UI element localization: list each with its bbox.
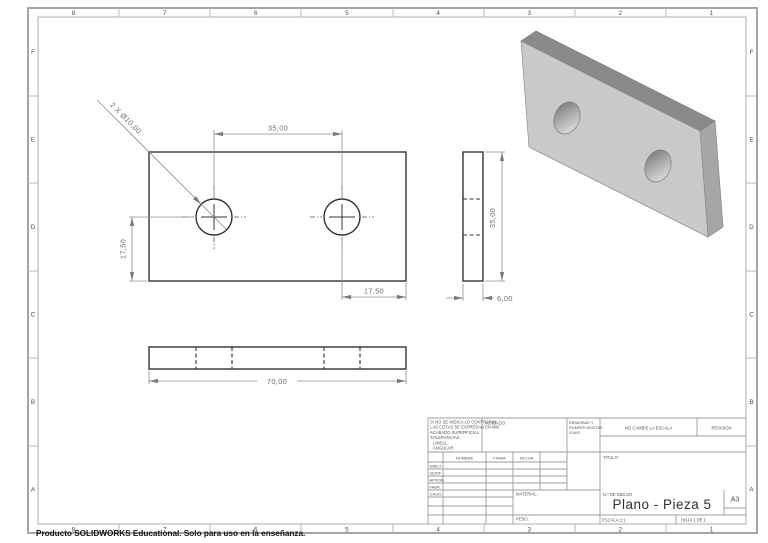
sign-row-label: DIBUJ. bbox=[430, 464, 443, 469]
title-label: TÍTULO: bbox=[603, 455, 619, 460]
educational-footer-note: Producto SOLIDWORKS Educational. Solo pa… bbox=[36, 529, 305, 538]
zone-row-label: F bbox=[750, 49, 754, 56]
side-view bbox=[463, 152, 483, 281]
zone-row-label: D bbox=[749, 224, 754, 231]
sign-col-header: FECHA bbox=[520, 456, 534, 461]
zone-col-label: 1 bbox=[710, 527, 714, 534]
zone-col-label: 8 bbox=[72, 10, 76, 17]
front-view-dimensions: 35,00 17,50 17,50 2 X Ø10,00 bbox=[97, 100, 406, 300]
dim-side-height: 35,00 bbox=[488, 208, 497, 228]
dim-hole-spacing: 35,00 bbox=[268, 124, 288, 133]
sheet-label: HOJA 1 DE 1 bbox=[681, 518, 707, 523]
zone-row-label: A bbox=[749, 487, 754, 494]
sheet-format: A3 bbox=[731, 497, 740, 504]
zone-row-label: D bbox=[31, 224, 36, 231]
dim-left-height: 17,50 bbox=[119, 239, 128, 259]
zone-row-label: B bbox=[749, 399, 753, 406]
zone-col-label: 7 bbox=[163, 10, 167, 17]
zone-row-label: B bbox=[31, 399, 35, 406]
material-label: MATERIAL: bbox=[516, 492, 538, 497]
bottom-view bbox=[149, 347, 406, 369]
dim-length: 70,00 bbox=[267, 377, 287, 386]
zone-row-label: C bbox=[749, 312, 754, 319]
deburr-line: VIVAS bbox=[569, 431, 580, 435]
deburr-note: REBARBAR Y ROMPER ARISTAS VIVAS bbox=[569, 421, 603, 435]
front-view bbox=[149, 152, 406, 281]
zone-col-label: 5 bbox=[345, 527, 349, 534]
zone-col-label: 3 bbox=[527, 527, 531, 534]
drawing-sheet: 8 7 6 5 4 3 2 1 8 7 6 5 4 3 2 1 F E D C … bbox=[0, 0, 768, 543]
deburr-line: REBARBAR Y bbox=[569, 421, 594, 425]
zone-col-label: 3 bbox=[527, 10, 531, 17]
zone-col-label: 4 bbox=[436, 10, 440, 17]
revision-label: REVISIÓN bbox=[711, 426, 731, 431]
sign-row-label: VERIF. bbox=[430, 471, 442, 476]
zone-col-label: 1 bbox=[710, 10, 714, 17]
bottom-view-dimensions: 70,00 bbox=[149, 371, 406, 386]
no-scale-note: NO CAMBIE LA ESCALA bbox=[625, 426, 672, 431]
sign-row-label: FABR. bbox=[430, 485, 442, 490]
centerline-cross bbox=[182, 185, 374, 249]
zone-row-label: E bbox=[31, 137, 35, 144]
zone-row-label: E bbox=[749, 137, 753, 144]
zone-row-label: C bbox=[31, 312, 36, 319]
deburr-line: ROMPER ARISTAS bbox=[569, 426, 603, 430]
weight-label: PESO: bbox=[516, 517, 529, 522]
zone-col-label: 6 bbox=[254, 10, 258, 17]
note-line: ANGULAR: bbox=[433, 446, 454, 451]
sign-col-header: FIRMA bbox=[493, 456, 506, 461]
zone-col-label: 2 bbox=[619, 10, 623, 17]
finish-label: ACABADO: bbox=[485, 421, 507, 426]
sign-row-label: CALID. bbox=[430, 492, 443, 497]
zone-col-label: 4 bbox=[436, 527, 440, 534]
title-block: SI NO SE INDICA LO CONTRARIO: LAS COTAS … bbox=[428, 418, 746, 524]
sign-col-header: NOMBRE bbox=[456, 456, 474, 461]
dim-right-offset: 17,50 bbox=[364, 287, 384, 296]
zone-col-label: 2 bbox=[619, 527, 623, 534]
isometric-view bbox=[521, 31, 723, 237]
hole-callout: 2 X Ø10,00 bbox=[108, 101, 143, 136]
scale-label: ESCALA:1:1 bbox=[602, 518, 626, 523]
zone-row-label: F bbox=[31, 49, 35, 56]
drawing-title: Plano - Pieza 5 bbox=[612, 497, 711, 512]
dim-thickness: 6,00 bbox=[497, 294, 513, 303]
zone-col-label: 5 bbox=[345, 10, 349, 17]
sign-row-label: APROB. bbox=[430, 478, 445, 483]
zone-row-label: A bbox=[31, 487, 36, 494]
